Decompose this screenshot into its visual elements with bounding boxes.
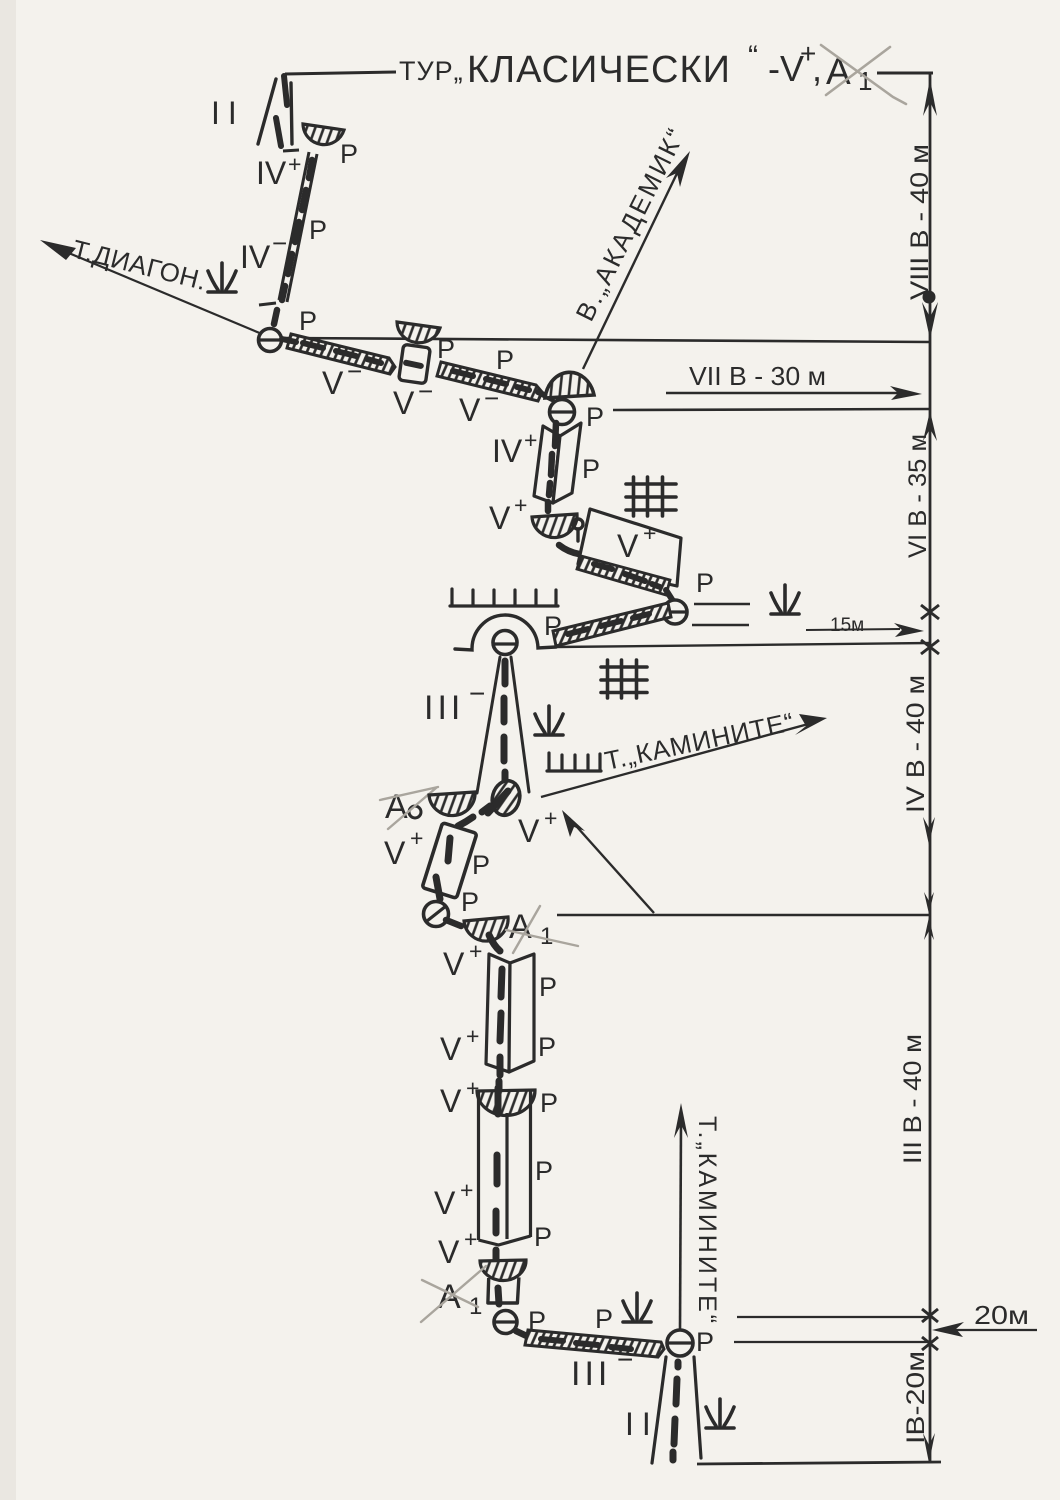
svg-text:IВ-20м: IВ-20м [902,1351,930,1444]
svg-text:V: V [489,500,511,536]
svg-text:Р: Р [582,454,600,484]
svg-text:КЛАСИЧЕСКИ: КЛАСИЧЕСКИ [467,49,731,91]
svg-text:+: + [514,492,527,518]
svg-text:-V: -V [768,48,804,89]
svg-text:Р: Р [528,1306,546,1336]
svg-text:Р: Р [299,306,317,336]
svg-text:IV В - 40 м: IV В - 40 м [902,675,930,813]
svg-text:+: + [469,938,482,964]
svg-text:VI В - 35 м: VI В - 35 м [904,434,932,558]
svg-text:Р: Р [539,972,557,1002]
svg-text:20м: 20м [974,1300,1029,1330]
svg-text:Р: Р [696,568,714,598]
svg-text:Р: Р [538,1032,556,1062]
svg-text:V: V [384,835,406,871]
svg-text:Р: Р [437,334,455,364]
svg-text:Р: Р [534,1222,552,1252]
svg-text:Р: Р [309,215,327,245]
svg-text:−: − [272,228,287,258]
svg-text:+: + [464,1226,477,1252]
svg-text:III: III [571,1355,611,1393]
svg-text:−: − [469,678,485,709]
svg-text:Р: Р [461,887,479,917]
svg-text:V: V [440,1083,462,1119]
svg-text:+: + [460,1177,473,1203]
svg-text:,: , [812,48,822,89]
svg-text:Р: Р [586,402,604,432]
svg-text:+: + [466,1023,479,1049]
svg-text:−: − [617,1344,633,1375]
svg-text:−: − [347,356,362,386]
svg-text:+: + [643,520,656,546]
svg-text:−: − [484,383,499,413]
svg-text:V: V [438,1234,460,1270]
svg-text:V: V [434,1185,456,1221]
svg-text:II: II [625,1406,659,1442]
svg-text:Р: Р [544,611,562,641]
svg-text:IV: IV [492,433,523,469]
svg-text:Р: Р [696,1327,714,1357]
svg-text:III В - 40 м: III В - 40 м [899,1034,927,1164]
svg-text:IV: IV [256,155,287,191]
svg-text:Р: Р [595,1304,613,1334]
svg-text:+: + [524,427,537,453]
svg-text:+: + [410,825,423,851]
svg-text:V: V [393,385,415,421]
svg-text:15м: 15м [830,615,864,636]
svg-text:Р: Р [496,345,514,375]
svg-text:+: + [544,805,557,831]
svg-text:V: V [459,392,481,428]
svg-text:III: III [424,689,464,727]
svg-text:Р: Р [540,1088,558,1118]
svg-text:VIII В - 40 м: VIII В - 40 м [906,144,934,300]
svg-text:V: V [443,946,465,982]
svg-text:1: 1 [540,923,553,950]
svg-text:Р: Р [472,850,490,880]
svg-text:+: + [466,1075,479,1101]
svg-text:−: − [418,376,433,406]
svg-text:Р: Р [340,139,358,169]
svg-text:II: II [211,95,245,131]
svg-text:Т.„КАМИНИТЕ“: Т.„КАМИНИТЕ“ [693,1116,721,1326]
svg-text:V: V [617,528,639,564]
svg-text:VII В - 30 м: VII В - 30 м [689,361,826,391]
svg-text:“: “ [748,40,758,73]
svg-text:+: + [288,151,301,177]
svg-text:V: V [518,813,540,849]
svg-text:V: V [440,1031,462,1067]
svg-text:Р: Р [535,1156,553,1186]
svg-text:IV: IV [240,239,271,275]
svg-text:V: V [322,365,344,401]
svg-text:ТУР„: ТУР„ [399,56,464,86]
